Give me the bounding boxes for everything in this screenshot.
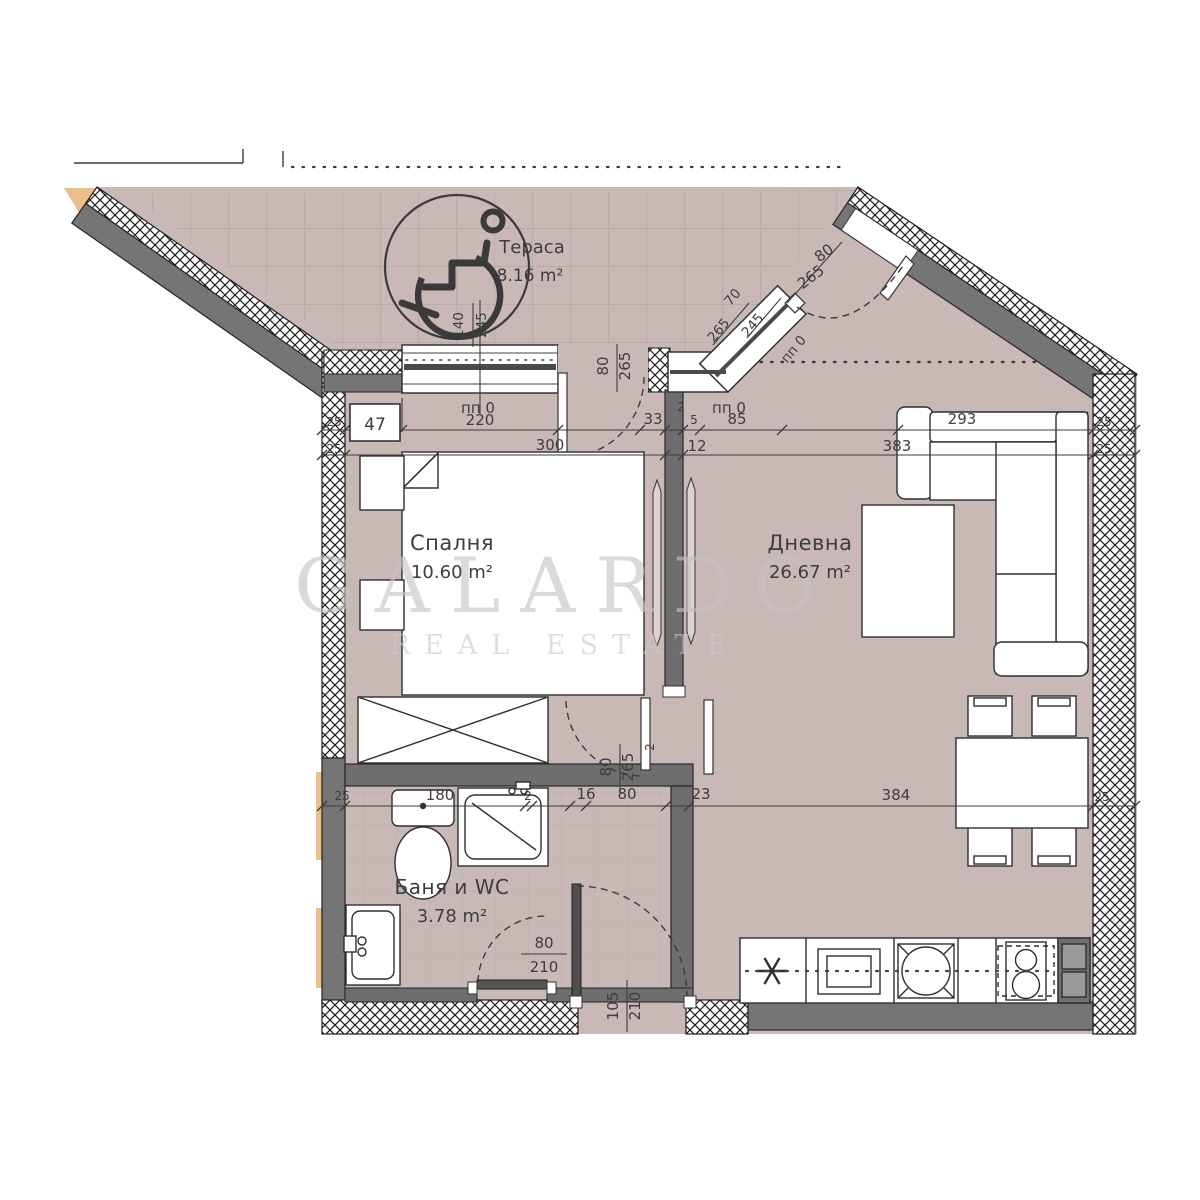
dim-383: 383 xyxy=(883,437,912,455)
wall-bath-east xyxy=(671,786,693,1002)
floor-plan-drawing: GALARDO REAL ESTATE Тераса 8.16 m² Спалн… xyxy=(0,0,1200,1200)
terrace-area: 8.16 m² xyxy=(497,266,564,286)
floor-plan-page: GALARDO REAL ESTATE Тераса 8.16 m² Спалн… xyxy=(0,0,1200,1200)
wall-bath-south-west xyxy=(345,988,477,1002)
bedroom-area: 10.60 m² xyxy=(411,562,493,583)
wall-bottom-kitchen xyxy=(748,1002,1093,1030)
dim-25-r3: 25 xyxy=(1094,790,1109,804)
wall-north-corner xyxy=(324,374,404,392)
dim-25-l2: 25 xyxy=(326,442,341,456)
watermark-brand: GALARDO xyxy=(294,541,835,630)
dining-table xyxy=(956,738,1088,828)
bath-sink xyxy=(344,905,400,985)
terrace-name: Тераса xyxy=(498,237,564,258)
dim-265-terr: 265 xyxy=(616,352,634,381)
window-mark-1: пп 0 xyxy=(461,399,495,417)
shower xyxy=(458,782,548,866)
dim-80-bed: 80 xyxy=(597,757,615,776)
bath-name: Баня и WC xyxy=(394,875,509,899)
dim-2-top: 2 xyxy=(677,400,685,414)
dim-210-bath: 210 xyxy=(530,958,559,976)
dim-180: 180 xyxy=(426,786,455,804)
dim-245-a: 245 xyxy=(474,312,490,338)
dim-12: 12 xyxy=(687,437,706,455)
wall-bottom-left xyxy=(322,1000,578,1034)
nightstand-top xyxy=(360,456,404,510)
dim-2-bed: 2 xyxy=(643,743,657,751)
wall-pier xyxy=(648,348,670,392)
appliance-unit xyxy=(1058,938,1090,1003)
bath-area: 3.78 m² xyxy=(417,906,488,927)
dim-80-terr: 80 xyxy=(594,356,612,375)
dim-293: 293 xyxy=(948,410,977,428)
window-mark-2: пп 0 xyxy=(712,399,746,417)
living-area: 26.67 m² xyxy=(769,562,851,583)
coffee-table xyxy=(862,505,954,637)
dim-23: 23 xyxy=(691,785,710,803)
dim-16: 16 xyxy=(576,785,595,803)
dim-384: 384 xyxy=(882,786,911,804)
kitchen-counter xyxy=(740,938,1090,1003)
dim-33: 33 xyxy=(643,410,662,428)
dim-210-entry: 210 xyxy=(626,992,644,1021)
dim-47: 47 xyxy=(364,415,386,435)
wall-right-insulated xyxy=(1093,374,1135,1034)
dim-25-l1: 25 xyxy=(326,415,341,429)
dim-105: 105 xyxy=(604,992,622,1021)
wall-north-corner-insulation xyxy=(324,350,402,374)
dim-2-mid: 2 xyxy=(524,789,532,803)
dim-5: 5 xyxy=(690,413,698,427)
dim-265-bed: 265 xyxy=(619,753,637,782)
dim-25-b: 25 xyxy=(334,789,349,803)
dim-25-r2: 25 xyxy=(1096,442,1111,456)
living-name: Дневна xyxy=(767,531,852,555)
dim-25-r1: 25 xyxy=(1096,415,1111,429)
wardrobe xyxy=(358,697,548,763)
bedroom-name: Спалня xyxy=(410,531,494,555)
dim-80-bath: 80 xyxy=(534,934,553,952)
dim-80-chain: 80 xyxy=(617,785,636,803)
dim-140: 140 xyxy=(451,312,467,338)
wall-central-jamb xyxy=(663,686,685,697)
watermark-tagline: REAL ESTATE xyxy=(390,630,741,661)
dim-300: 300 xyxy=(536,436,565,454)
